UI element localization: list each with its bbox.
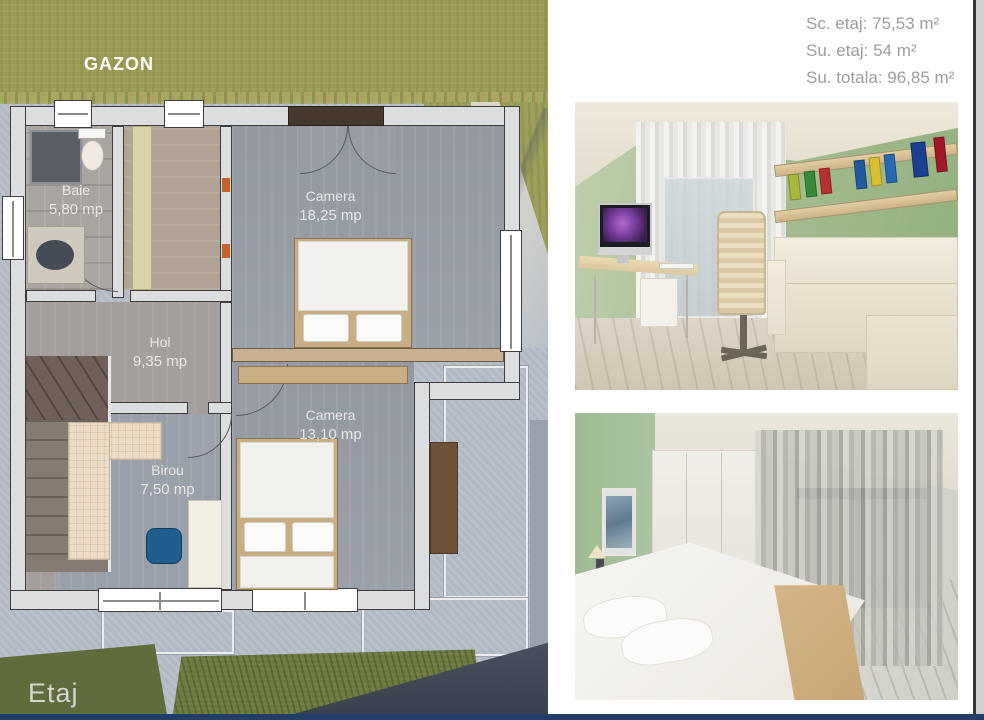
door-marker-1: [222, 178, 230, 192]
toilet-bowl: [81, 140, 104, 171]
window-mullion: [58, 113, 88, 115]
shower: [30, 130, 82, 184]
wall-birou-top-b: [208, 402, 232, 414]
keyboard: [659, 263, 693, 269]
window-mullion: [510, 235, 512, 349]
book: [803, 171, 817, 198]
toilet-tank: [78, 128, 106, 139]
window-top-2: [164, 100, 204, 128]
stairs-winder: [26, 356, 110, 420]
office-desk-drawer: [640, 278, 678, 327]
wall-wood-between-bedrooms: [232, 348, 504, 362]
driveway-strip: [530, 420, 548, 660]
chair-stem: [740, 315, 748, 350]
window-mullion: [12, 201, 14, 257]
bed-pillow: [244, 522, 286, 552]
photo-office-render: [575, 102, 958, 390]
bed-foot: [240, 556, 334, 588]
imac-wallpaper: [603, 208, 647, 241]
bed-duvet: [298, 241, 408, 311]
bed-pillow: [356, 314, 402, 342]
window-top-1: [54, 100, 92, 128]
bedroom-picture-art: [606, 496, 633, 548]
window-mullion: [168, 113, 200, 115]
summary-line-sc-etaj: Sc. etaj: 75,53 m²: [806, 10, 954, 37]
right-panel: Sc. etaj: 75,53 m² Su. etaj: 54 m² Su. t…: [548, 0, 984, 720]
presentation-canvas: GAZON: [0, 0, 984, 720]
office-sofa-arm: [767, 260, 786, 335]
window-mullion: [304, 592, 306, 610]
bed-pillow: [303, 314, 349, 342]
floor-plan-panel: GAZON: [0, 0, 548, 720]
sofa-birou-left: [68, 422, 110, 560]
window-bottom-1: [98, 588, 222, 612]
imac-screen: [598, 203, 652, 255]
area-summary: Sc. etaj: 75,53 m² Su. etaj: 54 m² Su. t…: [806, 10, 954, 91]
wall-dressing-camera: [220, 126, 232, 298]
wall-right-main: [414, 382, 430, 610]
desk-leg: [594, 275, 596, 344]
office-sofa-chaise: [866, 315, 958, 390]
wall-baie-hol-b: [130, 290, 232, 302]
bottom-accent-line: [0, 714, 984, 720]
window-bottom-2: [252, 588, 358, 612]
photo-bedroom-render: [575, 413, 958, 700]
summary-line-su-etaj: Su. etaj: 54 m²: [806, 37, 954, 64]
desk-birou: [188, 500, 222, 588]
window-dark-camera-mare: [288, 106, 384, 126]
imac-stand: [617, 255, 628, 264]
wall-baie-hol-a: [26, 290, 96, 302]
garden-label: GAZON: [84, 54, 154, 75]
sink-bowl: [36, 240, 74, 270]
desk-leg: [686, 275, 688, 338]
office-chair: [717, 211, 767, 315]
wardrobe-balcony: [430, 442, 458, 554]
dressing-wardrobe: [132, 126, 152, 290]
garden-area-top: [0, 0, 548, 102]
bed-duvet: [240, 442, 334, 518]
window-left-baie: [2, 196, 24, 260]
office-chair-plan: [146, 528, 182, 564]
bed-pillow: [292, 522, 334, 552]
summary-line-su-totala: Su. totala: 96,85 m²: [806, 64, 954, 91]
wall-left: [10, 106, 26, 610]
window-right-camera-mare: [500, 230, 522, 352]
window-mullion: [103, 600, 219, 602]
viewport-edge-strip: [976, 0, 984, 720]
book: [853, 159, 867, 189]
door-marker-2: [222, 244, 230, 258]
floor-label: Etaj: [28, 678, 79, 709]
sideboard-camera-mica: [238, 366, 408, 384]
lamp-shade: [588, 545, 606, 558]
